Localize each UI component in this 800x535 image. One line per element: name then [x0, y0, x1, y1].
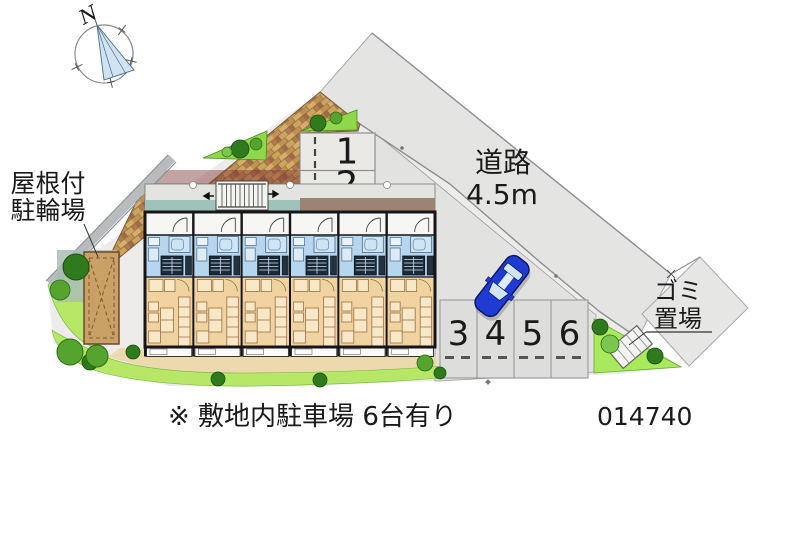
- tree-icon: [86, 345, 108, 367]
- tree-icon: [601, 335, 619, 353]
- bush-icon: [434, 367, 446, 379]
- bush-icon: [330, 112, 342, 124]
- parking-block-lower: 3 4 5 6: [440, 300, 588, 385]
- plan-number-label: 014740: [597, 402, 692, 431]
- svg-text:ゴミ: ゴミ: [654, 277, 702, 305]
- site-plan: 1 2 3 4 5: [0, 0, 800, 535]
- svg-text:道路: 道路: [475, 146, 531, 179]
- bush-icon: [63, 254, 89, 280]
- bush-icon: [211, 372, 225, 386]
- svg-text:置場: 置場: [654, 305, 702, 333]
- bush-icon: [250, 138, 262, 150]
- svg-text:屋根付: 屋根付: [10, 169, 85, 198]
- north-compass-icon: N: [72, 0, 137, 88]
- site-plan-map: 1 2 3 4 5: [0, 0, 800, 535]
- bush-icon: [313, 373, 327, 387]
- parking-space-6: 6: [559, 314, 581, 354]
- bush-icon: [647, 348, 663, 364]
- building-floorplan: [145, 212, 435, 357]
- parking-space-5: 5: [522, 314, 544, 354]
- tree-icon: [57, 339, 83, 365]
- svg-text:駐輪場: 駐輪場: [10, 196, 85, 225]
- building-corridor: [145, 181, 435, 212]
- bush-icon: [222, 147, 232, 157]
- bush-icon: [231, 140, 249, 158]
- svg-text:4.5m: 4.5m: [466, 178, 538, 211]
- site-note-label: ※ 敷地内駐車場 6台有り: [168, 402, 457, 432]
- bush-icon: [50, 280, 70, 300]
- parking-space-3: 3: [448, 314, 470, 354]
- tree-icon: [417, 355, 433, 371]
- tree-icon: [310, 115, 326, 131]
- road-label: 道路 4.5m: [466, 146, 538, 211]
- bush-icon: [126, 345, 140, 359]
- bush-icon: [592, 319, 608, 335]
